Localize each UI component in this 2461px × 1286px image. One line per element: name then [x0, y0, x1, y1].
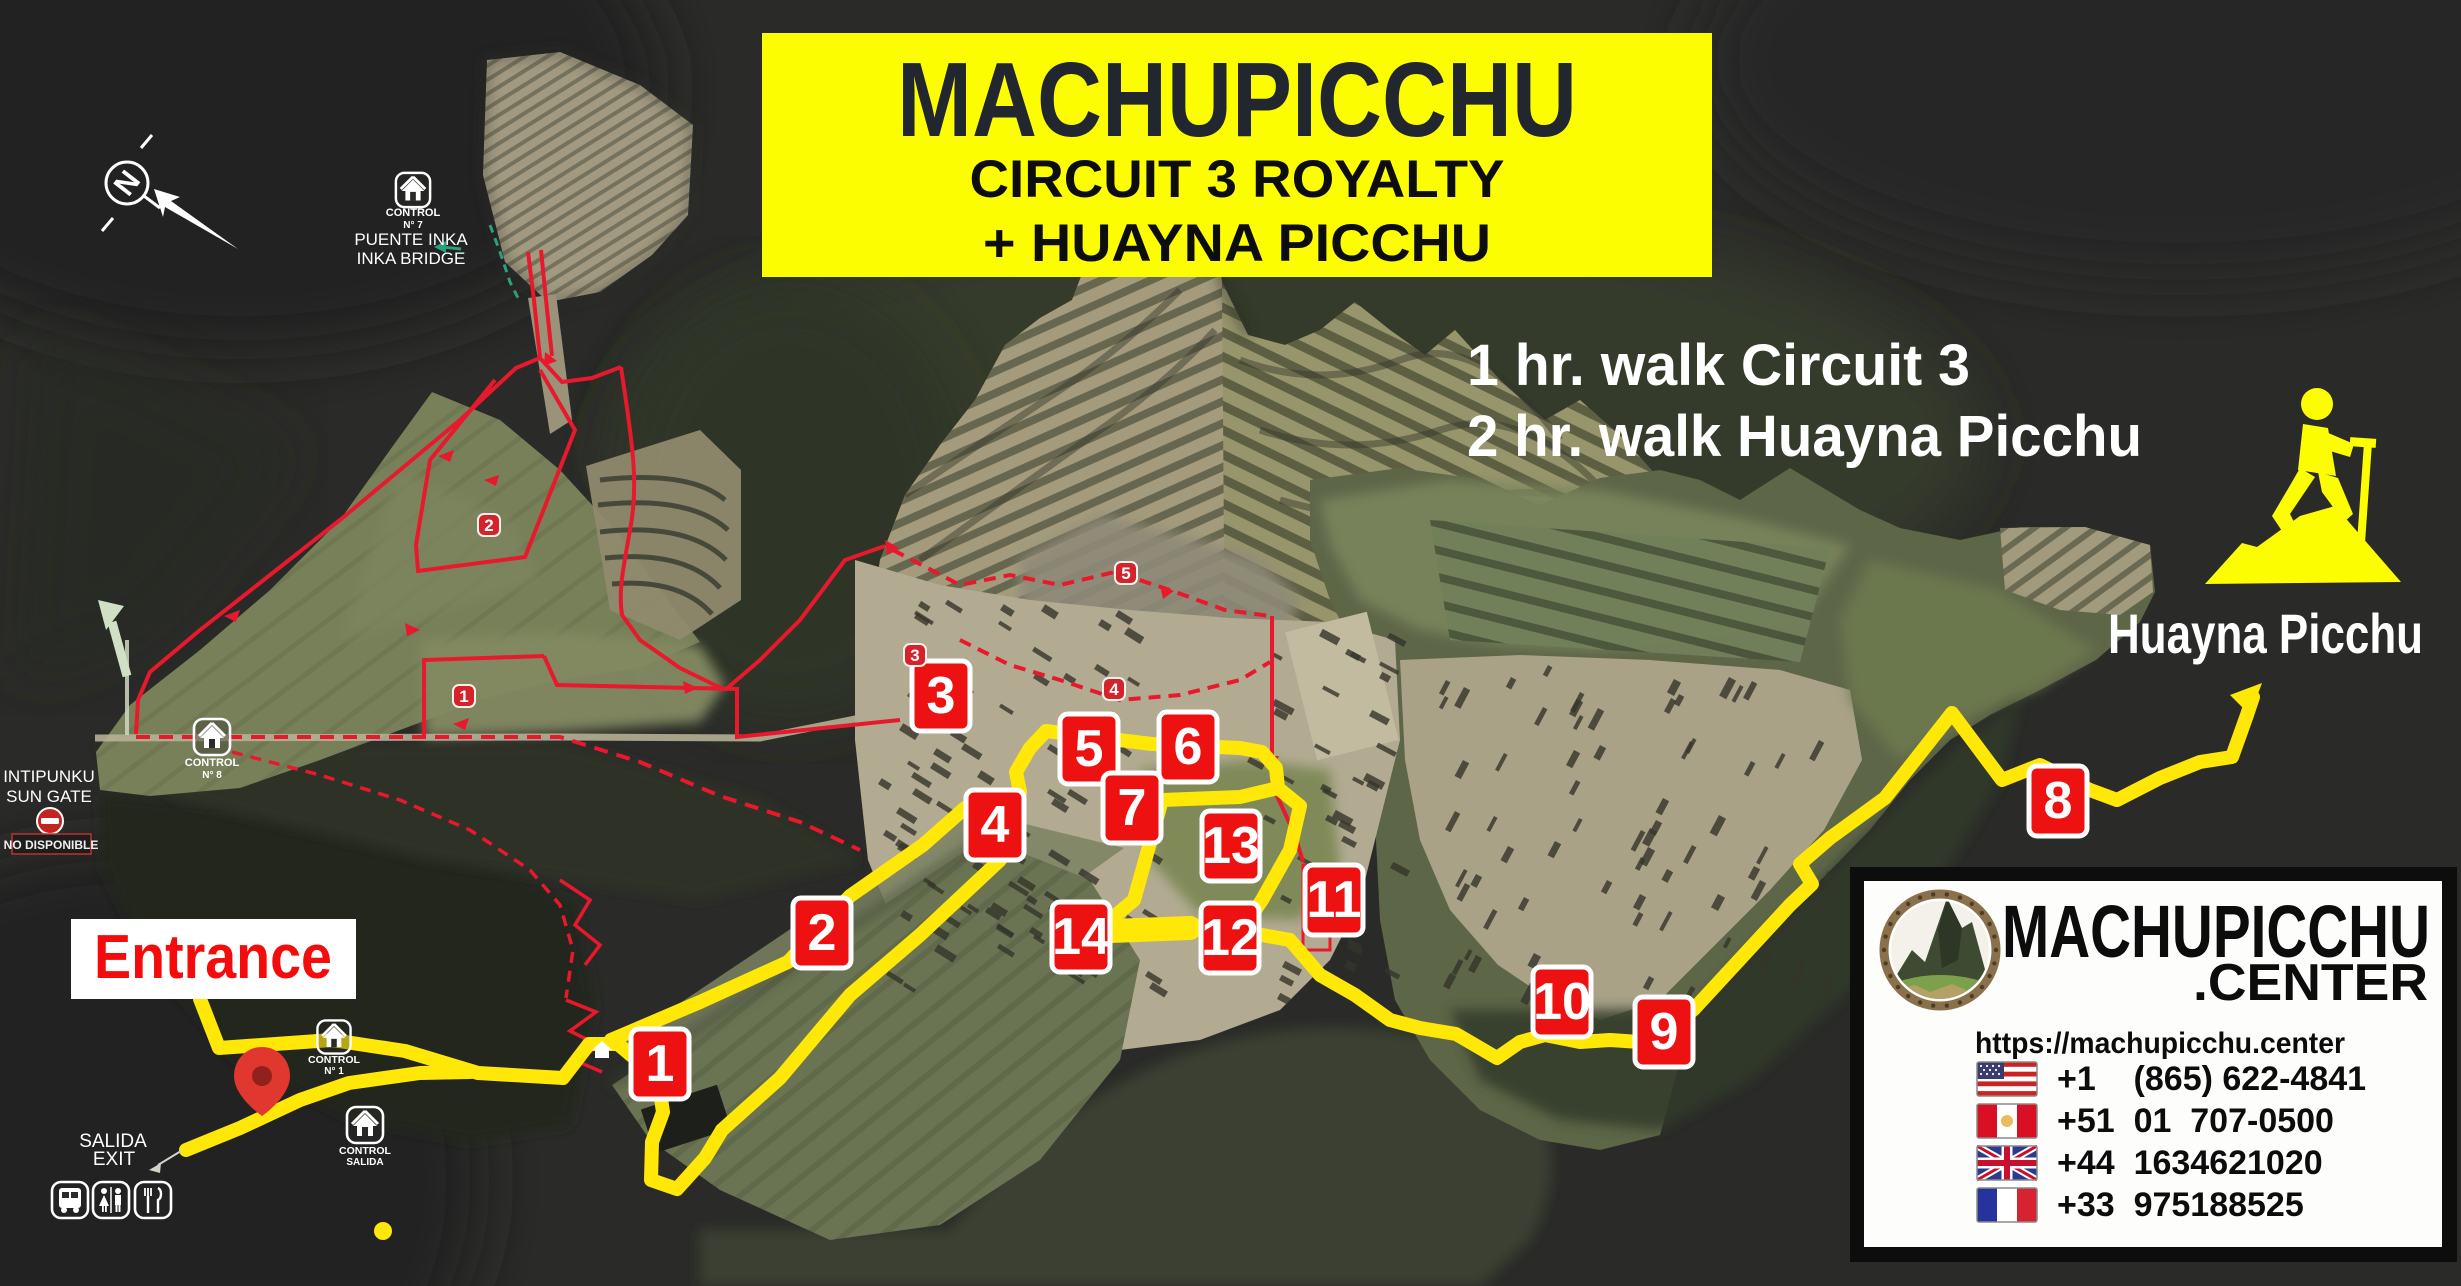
svg-text:5: 5	[1075, 720, 1104, 778]
svg-text:9: 9	[1650, 1003, 1679, 1061]
svg-text:+51 01 707-0500: +51 01 707-0500	[2057, 1102, 2334, 1140]
svg-text:https://machupicchu.center: https://machupicchu.center	[1975, 1027, 2345, 1060]
svg-text:NO DISPONIBLE: NO DISPONIBLE	[4, 838, 99, 852]
svg-text:2: 2	[484, 516, 493, 535]
svg-text:INTIPUNKU: INTIPUNKU	[3, 767, 95, 786]
svg-text:INKA BRIDGE: INKA BRIDGE	[357, 249, 466, 268]
svg-text:CONTROL: CONTROL	[386, 207, 441, 219]
svg-text:SALIDA: SALIDA	[346, 1157, 383, 1168]
svg-text:CONTROL: CONTROL	[308, 1054, 360, 1066]
svg-text:4: 4	[1109, 680, 1119, 699]
svg-text:5: 5	[1121, 564, 1130, 583]
svg-text:1: 1	[459, 687, 468, 706]
svg-text:+44 1634621020: +44 1634621020	[2057, 1144, 2323, 1182]
svg-text:CIRCUIT 3 ROYALTY: CIRCUIT 3 ROYALTY	[970, 150, 1505, 209]
svg-text:10: 10	[1533, 973, 1591, 1031]
svg-text:PUENTE INKA: PUENTE INKA	[354, 230, 468, 249]
svg-text:1: 1	[646, 1035, 675, 1093]
svg-text:CONTROL: CONTROL	[339, 1145, 391, 1157]
svg-text:7: 7	[1118, 779, 1147, 837]
svg-text:12: 12	[1201, 909, 1259, 967]
svg-text:CONTROL: CONTROL	[185, 757, 240, 769]
svg-text:11: 11	[1307, 871, 1362, 929]
svg-text:3: 3	[910, 646, 919, 665]
svg-text:4: 4	[981, 796, 1010, 854]
svg-text:2 hr. walk Huayna Picchu: 2 hr. walk Huayna Picchu	[1467, 404, 2142, 469]
svg-text:2: 2	[808, 904, 837, 962]
svg-text:+1 (865) 622-4841: +1 (865) 622-4841	[2057, 1060, 2366, 1098]
svg-text:N° 1: N° 1	[324, 1066, 344, 1077]
svg-text:6: 6	[1174, 718, 1203, 776]
svg-text:1 hr. walk Circuit 3: 1 hr. walk Circuit 3	[1467, 333, 1970, 398]
svg-text:14: 14	[1052, 908, 1110, 966]
svg-text:Huayna Picchu: Huayna Picchu	[2108, 602, 2423, 665]
svg-text:13: 13	[1202, 817, 1260, 875]
svg-text:SUN GATE: SUN GATE	[6, 787, 92, 806]
svg-text:3: 3	[927, 667, 956, 725]
svg-text:.CENTER: .CENTER	[2193, 954, 2428, 1012]
svg-text:8: 8	[2044, 772, 2073, 830]
svg-text:+ HUAYNA PICCHU: + HUAYNA PICCHU	[983, 214, 1491, 273]
svg-text:Entrance: Entrance	[94, 923, 332, 992]
svg-text:MACHUPICCHU: MACHUPICCHU	[897, 41, 1577, 159]
svg-text:N° 8: N° 8	[202, 770, 222, 781]
svg-text:+33 975188525: +33 975188525	[2057, 1186, 2304, 1224]
svg-text:EXIT: EXIT	[93, 1149, 136, 1170]
